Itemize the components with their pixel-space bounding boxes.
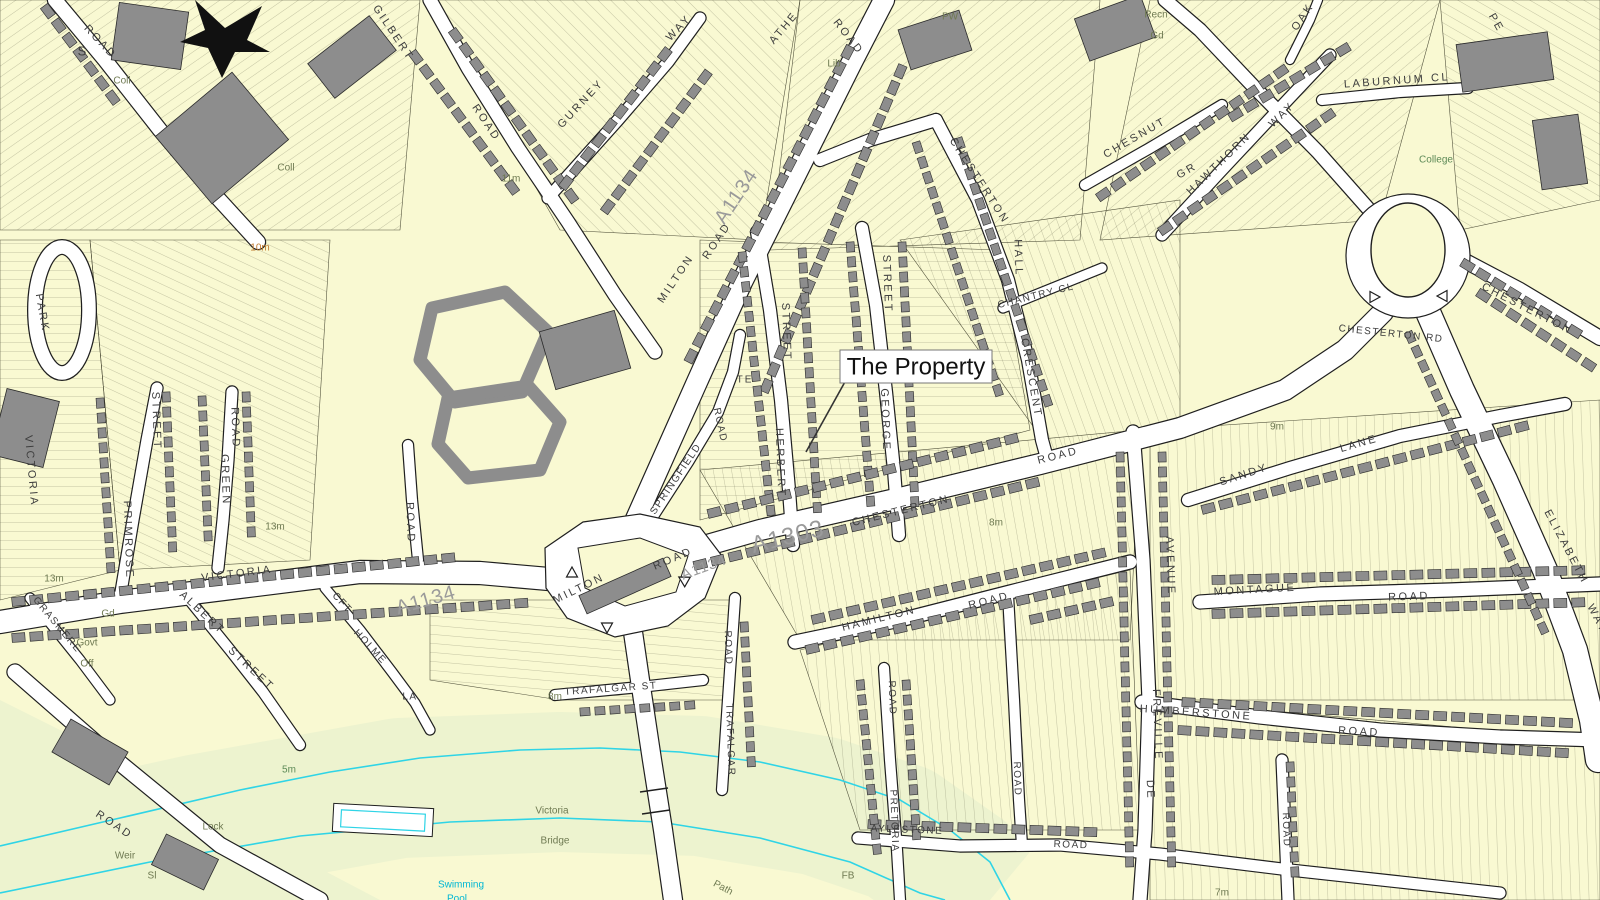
building xyxy=(907,755,916,766)
building xyxy=(1167,842,1175,852)
building xyxy=(65,591,79,601)
building xyxy=(1158,467,1166,477)
building xyxy=(1165,737,1173,747)
building xyxy=(1212,575,1225,584)
building xyxy=(750,356,759,367)
building xyxy=(1119,572,1127,582)
building xyxy=(1212,609,1225,618)
building xyxy=(199,426,207,436)
building xyxy=(1393,738,1407,748)
building xyxy=(1121,662,1129,672)
building xyxy=(164,452,172,462)
label-5m: 5m xyxy=(282,765,296,776)
building xyxy=(461,602,475,612)
building xyxy=(165,467,173,477)
building xyxy=(1123,737,1131,747)
building xyxy=(204,531,212,541)
building xyxy=(1236,700,1249,710)
building xyxy=(1554,566,1567,575)
label-7m: 7m xyxy=(1215,888,1229,899)
building xyxy=(1374,571,1387,580)
building xyxy=(1447,742,1461,752)
building xyxy=(101,587,115,597)
building xyxy=(1124,782,1132,792)
building xyxy=(905,725,914,736)
building xyxy=(685,701,695,710)
building xyxy=(1162,602,1170,612)
building xyxy=(1321,734,1335,744)
building xyxy=(1232,729,1246,739)
label-road: ROAD xyxy=(228,407,241,449)
building xyxy=(1302,606,1315,615)
label-13m: 13m xyxy=(265,522,284,533)
building xyxy=(743,682,751,692)
building xyxy=(353,609,367,619)
building xyxy=(101,626,115,636)
building xyxy=(299,613,313,623)
building xyxy=(1428,569,1441,578)
building xyxy=(905,392,913,402)
building xyxy=(1451,712,1464,722)
building xyxy=(859,406,868,417)
building xyxy=(370,560,384,570)
building xyxy=(1464,569,1477,578)
building xyxy=(1164,692,1172,702)
building xyxy=(747,757,755,767)
label-road: ROAD xyxy=(403,502,416,544)
building xyxy=(1166,812,1174,822)
label-8m: 8m xyxy=(548,692,562,703)
building xyxy=(1287,777,1295,787)
building xyxy=(12,596,26,606)
building xyxy=(1122,722,1130,732)
building xyxy=(740,622,748,632)
label-govt: Govt xyxy=(76,638,97,649)
building xyxy=(137,624,151,634)
label-lib: Lib xyxy=(827,59,841,70)
building xyxy=(1250,730,1264,740)
building xyxy=(1500,568,1513,577)
building xyxy=(976,823,989,832)
building xyxy=(1465,743,1479,753)
building xyxy=(804,353,813,363)
building xyxy=(1162,617,1170,627)
building xyxy=(1120,602,1128,612)
building xyxy=(317,612,331,622)
building xyxy=(263,615,277,625)
building xyxy=(166,482,174,492)
building-large xyxy=(111,2,188,69)
building xyxy=(98,428,107,438)
building xyxy=(198,396,206,406)
building xyxy=(1286,732,1300,742)
map-canvas: ROADGILBERTROADGURNEYWAYATHEROADA1134MIL… xyxy=(0,0,1600,900)
building xyxy=(1411,739,1425,749)
building xyxy=(1326,705,1339,715)
label-de: DE xyxy=(1144,780,1157,801)
building xyxy=(741,281,750,292)
building xyxy=(1541,717,1554,727)
building xyxy=(806,383,815,393)
building xyxy=(1379,708,1392,718)
label-coll: Coll xyxy=(277,163,294,174)
building xyxy=(847,257,856,268)
building xyxy=(119,585,133,595)
building xyxy=(1397,709,1410,719)
building xyxy=(811,472,820,482)
building xyxy=(861,724,870,735)
building xyxy=(738,252,747,263)
building xyxy=(1122,692,1130,702)
building xyxy=(202,501,210,511)
building xyxy=(137,584,151,594)
building xyxy=(958,823,971,832)
building xyxy=(1523,716,1536,726)
label-street: STREET xyxy=(779,303,793,362)
map-image: ROADGILBERTROADGURNEYWAYATHEROADA1134MIL… xyxy=(0,0,1600,900)
building xyxy=(1124,812,1132,822)
building xyxy=(1166,782,1174,792)
building xyxy=(1048,826,1061,835)
building xyxy=(352,562,366,572)
building xyxy=(862,739,871,750)
building xyxy=(1500,600,1513,609)
building xyxy=(100,458,109,468)
building xyxy=(1230,609,1243,618)
building xyxy=(1392,570,1405,579)
building xyxy=(742,652,750,662)
building xyxy=(1268,731,1282,741)
building xyxy=(807,398,816,408)
building xyxy=(1165,752,1173,762)
building xyxy=(167,512,175,522)
building xyxy=(1302,573,1315,582)
building xyxy=(865,769,874,780)
building xyxy=(168,542,176,552)
label-hall: HALL xyxy=(1011,239,1024,277)
building xyxy=(763,475,772,486)
building xyxy=(852,317,861,328)
building xyxy=(742,667,750,677)
building xyxy=(242,392,250,402)
building xyxy=(30,631,44,641)
building xyxy=(246,497,254,507)
building xyxy=(247,512,255,522)
building xyxy=(227,618,241,628)
label-off: Off xyxy=(80,659,93,670)
building xyxy=(907,422,915,432)
label-george: GEORGE xyxy=(878,388,892,452)
building xyxy=(199,411,207,421)
building xyxy=(106,562,115,572)
building xyxy=(406,556,420,566)
building xyxy=(1120,617,1128,627)
building xyxy=(1392,603,1405,612)
building xyxy=(760,445,769,456)
building-large xyxy=(1532,114,1587,190)
building xyxy=(1572,598,1585,607)
building xyxy=(1119,587,1127,597)
label-road: ROAD xyxy=(1280,812,1292,847)
building xyxy=(863,451,872,462)
building xyxy=(243,407,251,417)
building xyxy=(104,532,113,542)
building xyxy=(1116,452,1124,462)
building xyxy=(1266,574,1279,583)
building xyxy=(899,257,907,267)
label-college: College xyxy=(1419,155,1453,166)
swimming-pool-building xyxy=(332,803,433,836)
building xyxy=(102,488,111,498)
building xyxy=(741,637,749,647)
building xyxy=(1230,575,1243,584)
building xyxy=(163,407,171,417)
label-road: ROAD xyxy=(1338,725,1380,739)
building xyxy=(625,705,635,714)
building xyxy=(1433,711,1446,721)
building xyxy=(1446,569,1459,578)
building xyxy=(1537,747,1551,757)
building xyxy=(864,754,873,765)
building xyxy=(1290,703,1303,713)
building xyxy=(163,422,171,432)
building xyxy=(1196,727,1210,737)
label-pool: Pool xyxy=(447,894,467,900)
building xyxy=(1487,714,1500,724)
label-road: ROAD xyxy=(1011,761,1023,796)
building xyxy=(1066,827,1079,836)
building xyxy=(851,302,860,313)
building xyxy=(858,391,867,402)
building xyxy=(1287,792,1295,802)
label-recn: Recn xyxy=(1144,10,1167,21)
building xyxy=(298,567,312,577)
building xyxy=(1162,632,1170,642)
building xyxy=(902,680,911,691)
building xyxy=(1117,482,1125,492)
building xyxy=(99,443,108,453)
building xyxy=(800,278,809,288)
label-pw: PW xyxy=(942,12,959,23)
building xyxy=(746,742,754,752)
label-bridge: Bridge xyxy=(541,836,570,847)
label-freville: FREVILLE xyxy=(1150,689,1165,761)
building xyxy=(904,710,913,721)
building xyxy=(595,706,605,715)
building xyxy=(1428,602,1441,611)
building xyxy=(866,496,875,507)
building xyxy=(168,527,176,537)
building xyxy=(746,326,755,337)
building xyxy=(1344,706,1357,716)
building xyxy=(758,431,767,442)
building xyxy=(655,703,665,712)
label-te: TE xyxy=(737,375,754,386)
label-8m: 8m xyxy=(989,518,1003,529)
building xyxy=(371,608,385,618)
building xyxy=(1519,746,1533,756)
building xyxy=(1356,571,1369,580)
label-road: ROAD xyxy=(722,630,734,665)
building xyxy=(755,401,764,412)
roundabout-island xyxy=(1371,203,1445,297)
building xyxy=(1125,842,1133,852)
building xyxy=(802,308,811,318)
building xyxy=(1469,713,1482,723)
building xyxy=(1159,482,1167,492)
building xyxy=(247,527,255,537)
building xyxy=(740,266,749,277)
building xyxy=(497,599,511,609)
building xyxy=(856,680,865,691)
building xyxy=(909,785,918,796)
building xyxy=(200,441,208,451)
building xyxy=(1166,797,1174,807)
building xyxy=(1121,677,1129,687)
building xyxy=(858,695,867,706)
building xyxy=(423,555,437,565)
building xyxy=(745,311,754,322)
building xyxy=(910,482,918,492)
label-13m: 13m xyxy=(44,574,63,585)
building xyxy=(868,799,877,810)
building xyxy=(83,589,97,599)
building xyxy=(1361,707,1374,717)
building xyxy=(201,471,209,481)
building xyxy=(441,553,455,563)
building xyxy=(245,482,253,492)
building xyxy=(1124,797,1132,807)
building xyxy=(1168,857,1176,867)
building xyxy=(900,272,908,282)
building xyxy=(166,497,174,507)
building xyxy=(865,481,874,492)
building xyxy=(610,706,620,715)
label-pretoria: PRETORIA xyxy=(887,789,900,852)
building xyxy=(1505,715,1518,725)
label-green: GREEN xyxy=(218,454,232,506)
label-coll: Coll xyxy=(113,76,130,87)
building xyxy=(1165,767,1173,777)
building xyxy=(1286,762,1294,772)
building xyxy=(810,457,819,467)
label-herbert: HERBERT xyxy=(773,428,787,498)
label-road: ROAD xyxy=(1053,839,1088,851)
building xyxy=(84,628,98,638)
building xyxy=(1119,557,1127,567)
building xyxy=(1248,608,1261,617)
label-swimming: Swimming xyxy=(438,880,484,891)
building xyxy=(245,467,253,477)
building xyxy=(846,242,855,253)
building xyxy=(902,317,910,327)
building xyxy=(1163,677,1171,687)
building xyxy=(1084,827,1097,836)
building xyxy=(756,416,765,427)
building xyxy=(898,242,906,252)
building xyxy=(1030,825,1043,834)
building xyxy=(809,427,818,437)
building xyxy=(805,368,814,378)
building xyxy=(1374,604,1387,613)
building xyxy=(243,422,251,432)
building xyxy=(801,293,810,303)
building xyxy=(1291,867,1299,877)
building xyxy=(813,502,822,512)
building xyxy=(1304,733,1318,743)
callout-label: The Property xyxy=(847,353,986,380)
building xyxy=(906,407,914,417)
building xyxy=(1410,570,1423,579)
label-la: LA xyxy=(402,692,417,703)
label-street: STREET xyxy=(149,392,163,451)
building xyxy=(244,437,252,447)
building xyxy=(1117,512,1125,522)
building xyxy=(1121,647,1129,657)
label-11m: 11m xyxy=(502,174,521,185)
building xyxy=(1118,527,1126,537)
label-sl: Sl xyxy=(148,871,157,882)
building xyxy=(164,437,172,447)
building xyxy=(280,569,294,579)
building xyxy=(1126,857,1134,867)
building xyxy=(808,412,817,422)
label-9m: 9m xyxy=(1270,422,1284,433)
building xyxy=(745,727,753,737)
building xyxy=(1415,710,1428,720)
building xyxy=(866,784,875,795)
building xyxy=(1320,572,1333,581)
building xyxy=(848,272,857,283)
building xyxy=(201,456,209,466)
building xyxy=(203,516,211,526)
building xyxy=(1118,542,1126,552)
building xyxy=(1536,567,1549,576)
building xyxy=(1501,745,1515,755)
building xyxy=(1410,603,1423,612)
building xyxy=(908,437,916,447)
building xyxy=(1254,701,1267,711)
building xyxy=(744,697,752,707)
building xyxy=(515,598,529,608)
building xyxy=(908,770,917,781)
building xyxy=(861,436,870,447)
building xyxy=(903,695,912,706)
building xyxy=(1483,744,1497,754)
building xyxy=(155,582,169,592)
building xyxy=(902,332,910,342)
building xyxy=(479,601,493,611)
building xyxy=(1554,598,1567,607)
building xyxy=(798,248,807,258)
building xyxy=(1356,605,1369,614)
building xyxy=(1158,452,1166,462)
building xyxy=(1284,607,1297,616)
label-street: STREET xyxy=(880,255,894,314)
label-weir: Weir xyxy=(115,851,136,862)
building xyxy=(849,287,858,298)
building xyxy=(96,398,105,408)
label-road: ROAD xyxy=(1388,590,1430,603)
building xyxy=(1464,601,1477,610)
building xyxy=(1248,574,1261,583)
building xyxy=(1338,572,1351,581)
building xyxy=(670,702,680,711)
building xyxy=(281,614,295,624)
building xyxy=(901,302,909,312)
building xyxy=(994,824,1007,833)
label-avenue: AVENUE xyxy=(1163,536,1177,596)
